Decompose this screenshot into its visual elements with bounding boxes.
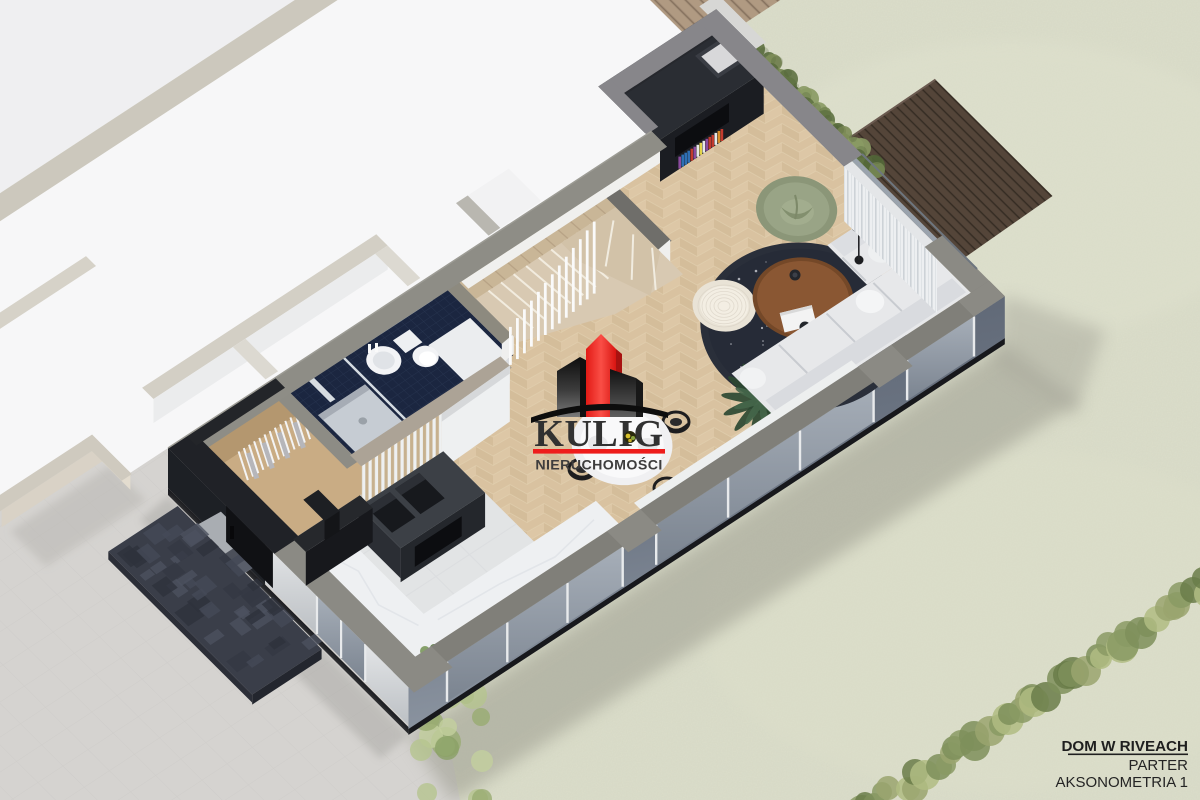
svg-text:PARTER: PARTER bbox=[1129, 757, 1189, 774]
svg-text:NIERUCHOMOŚCI: NIERUCHOMOŚCI bbox=[535, 456, 662, 474]
svg-text:DOM W RIVEACH: DOM W RIVEACH bbox=[1061, 738, 1188, 755]
svg-text:AKSONOMETRIA 1: AKSONOMETRIA 1 bbox=[1055, 774, 1188, 791]
svg-text:KULIG: KULIG bbox=[534, 413, 663, 455]
